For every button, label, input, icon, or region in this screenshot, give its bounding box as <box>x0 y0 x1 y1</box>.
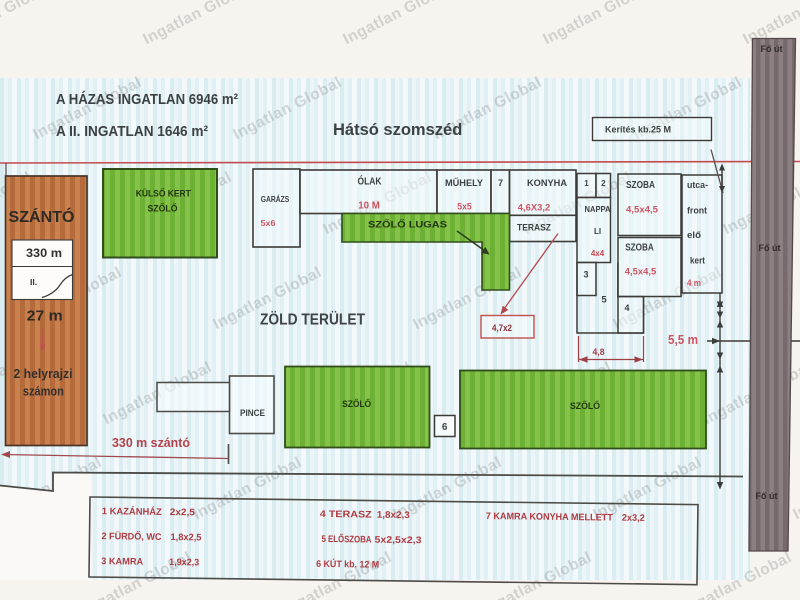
svg-text:7 KAMRA KONYHA MELLETT: 7 KAMRA KONYHA MELLETT <box>486 511 613 524</box>
svg-text:2 FÜRDŐ, WC: 2 FÜRDŐ, WC <box>101 530 161 543</box>
svg-text:KÜLSŐ KERT: KÜLSŐ KERT <box>136 188 191 200</box>
svg-text:SZOBA: SZOBA <box>625 243 654 254</box>
svg-text:330 m: 330 m <box>26 248 62 260</box>
svg-text:MŰHELY: MŰHELY <box>445 177 484 189</box>
svg-text:6 KÚT kb. 12 M: 6 KÚT kb. 12 M <box>316 558 379 571</box>
svg-text:4,5x4,5: 4,5x4,5 <box>625 267 657 278</box>
svg-text:Fő út: Fő út <box>756 491 779 502</box>
svg-text:front: front <box>687 206 708 217</box>
svg-text:2x2,5: 2x2,5 <box>170 507 196 518</box>
svg-text:SZŐLŐ: SZŐLŐ <box>570 400 600 412</box>
svg-text:7: 7 <box>498 178 503 188</box>
svg-text:A HÁZAS INGATLAN 6946 m²: A HÁZAS INGATLAN 6946 m² <box>56 91 238 108</box>
svg-text:SZOBA: SZOBA <box>626 180 655 191</box>
svg-text:6: 6 <box>442 422 448 433</box>
svg-text:1 KAZÁNHÁZ: 1 KAZÁNHÁZ <box>102 506 162 518</box>
svg-text:SZŐLŐ: SZŐLŐ <box>148 203 178 215</box>
svg-text:3: 3 <box>583 270 588 280</box>
svg-text:1,8x2,3: 1,8x2,3 <box>377 510 410 521</box>
svg-text:330 m szántó: 330 m szántó <box>112 436 190 450</box>
svg-text:1,8x2,5: 1,8x2,5 <box>170 532 202 543</box>
svg-text:4,7x2: 4,7x2 <box>492 323 512 334</box>
svg-text:II.: II. <box>30 277 37 287</box>
svg-text:4 TERASZ: 4 TERASZ <box>320 509 372 521</box>
svg-text:Fő út: Fő út <box>761 44 784 55</box>
svg-text:5,5 m: 5,5 m <box>668 333 698 347</box>
svg-text:5 ELŐSZOBA: 5 ELŐSZOBA <box>321 533 371 546</box>
svg-text:ZÖLD TERÜLET: ZÖLD TERÜLET <box>260 312 365 329</box>
svg-text:5x6: 5x6 <box>261 219 277 228</box>
svg-text:2x3,2: 2x3,2 <box>622 513 645 524</box>
svg-text:SZŐLŐ LUGAS: SZŐLŐ LUGAS <box>368 219 447 231</box>
svg-text:4,6X3,2: 4,6X3,2 <box>518 203 551 213</box>
svg-text:NAPPA: NAPPA <box>585 204 611 214</box>
svg-text:Fő út: Fő út <box>759 243 782 254</box>
svg-text:4,5x4,5: 4,5x4,5 <box>626 205 659 216</box>
svg-text:4,8: 4,8 <box>593 347 605 358</box>
svg-text:4x4: 4x4 <box>591 249 605 258</box>
svg-text:TERASZ: TERASZ <box>517 223 551 234</box>
svg-text:LI: LI <box>594 227 601 236</box>
svg-text:ÓLAK: ÓLAK <box>358 175 383 188</box>
svg-text:4: 4 <box>624 303 629 313</box>
svg-text:1: 1 <box>584 179 589 188</box>
svg-text:elő: elő <box>687 230 701 241</box>
svg-text:27 m: 27 m <box>27 308 63 325</box>
svg-text:1,9x2,3: 1,9x2,3 <box>169 557 199 568</box>
svg-text:3 KAMRA: 3 KAMRA <box>101 556 143 568</box>
svg-text:Hátsó szomszéd: Hátsó szomszéd <box>333 121 462 139</box>
svg-text:5x5: 5x5 <box>457 202 472 213</box>
svg-text:SZÁNTÓ: SZÁNTÓ <box>9 208 75 226</box>
svg-text:5: 5 <box>601 295 607 306</box>
svg-text:Kerítés kb.25 M: Kerítés kb.25 M <box>605 125 671 136</box>
svg-text:A II. INGATLAN 1646 m²: A II. INGATLAN 1646 m² <box>56 123 208 140</box>
svg-text:GARÁZS: GARÁZS <box>261 194 290 204</box>
svg-text:5x2,5x2,3: 5x2,5x2,3 <box>374 535 421 547</box>
svg-text:PINCE: PINCE <box>240 408 265 419</box>
svg-text:2: 2 <box>601 179 606 188</box>
svg-text:KONYHA: KONYHA <box>527 178 567 189</box>
svg-text:4 m: 4 m <box>687 278 701 289</box>
svg-text:2 helyrajzi: 2 helyrajzi <box>14 367 73 381</box>
svg-text:számon: számon <box>23 385 64 399</box>
svg-text:SZŐLŐ: SZŐLŐ <box>342 398 371 410</box>
svg-text:utca-: utca- <box>687 180 708 191</box>
svg-text:kert: kert <box>690 256 706 267</box>
svg-text:10 M: 10 M <box>358 201 380 212</box>
